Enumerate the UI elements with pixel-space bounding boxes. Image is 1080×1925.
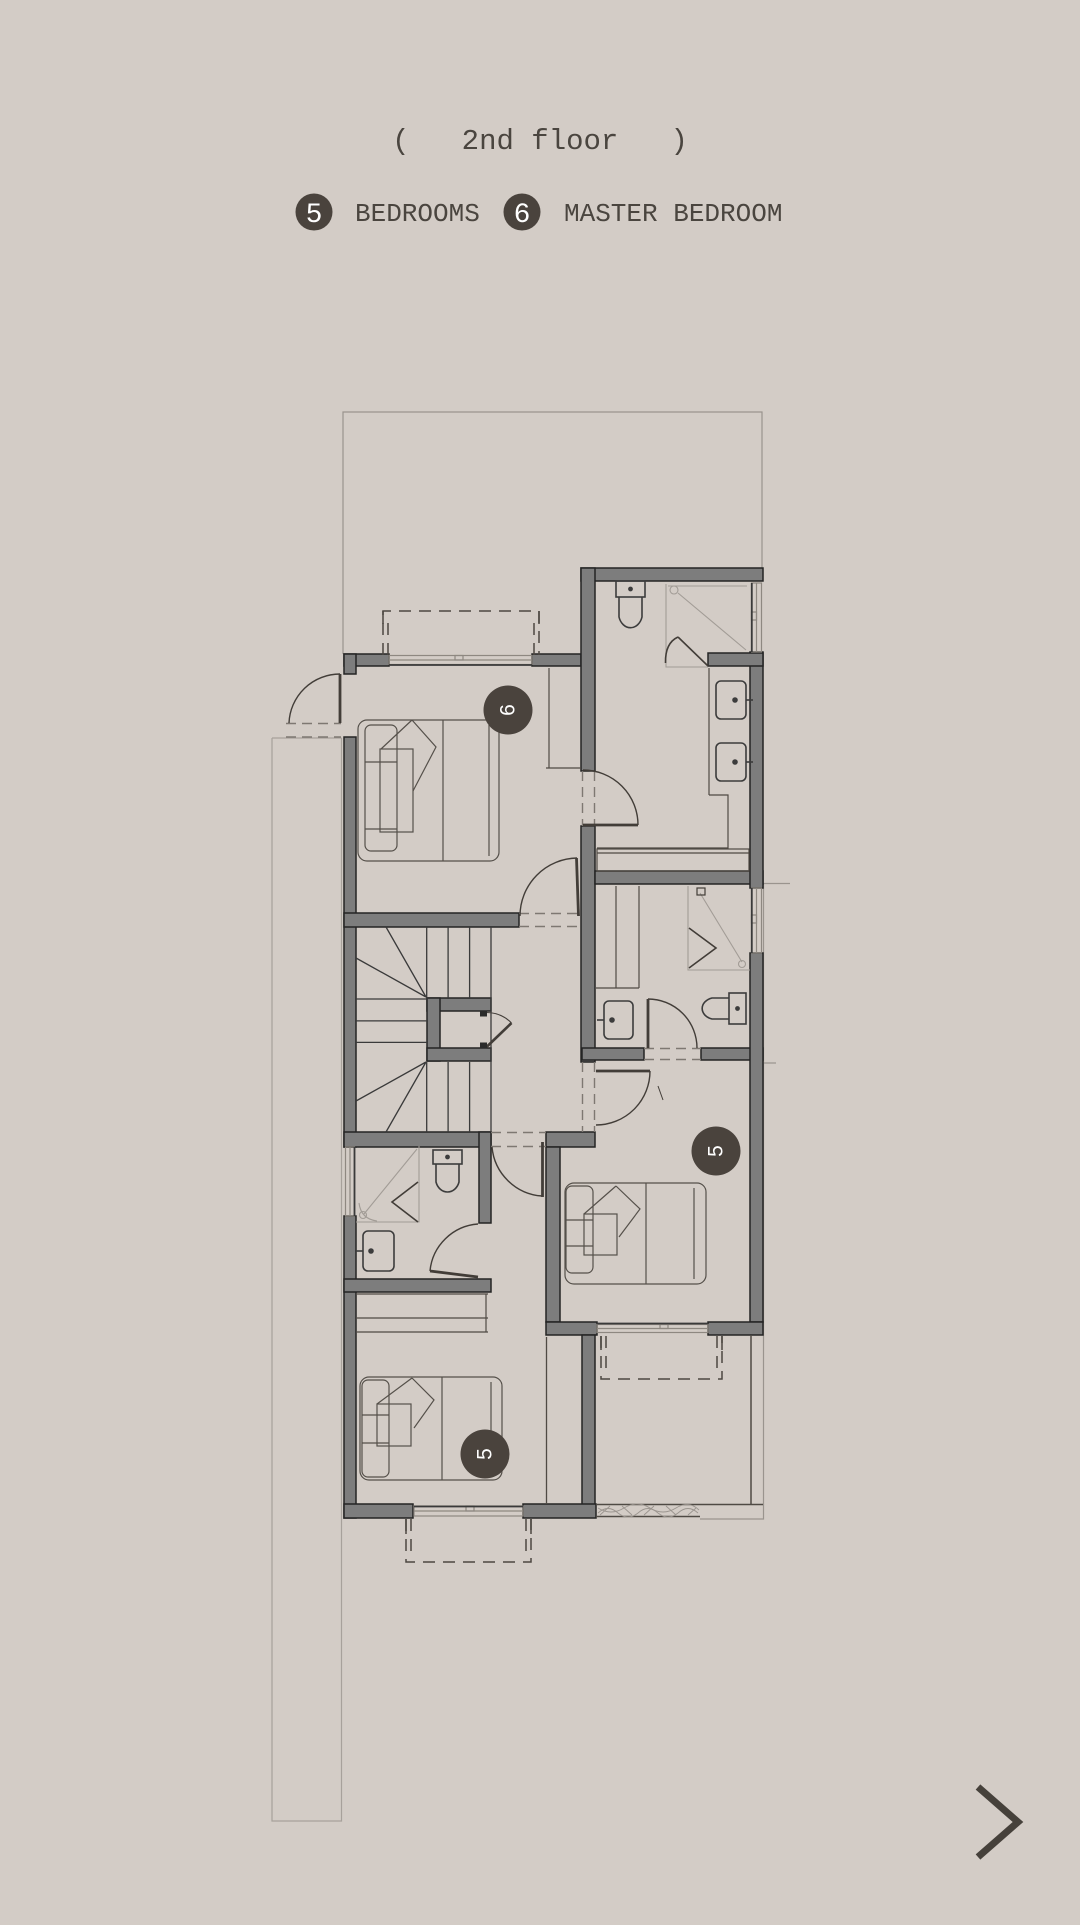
svg-text:5: 5 <box>306 200 323 231</box>
svg-text:MASTER BEDROOM: MASTER BEDROOM <box>564 199 782 229</box>
svg-text:5: 5 <box>705 1145 728 1157</box>
svg-text:( 2nd floor ): ( 2nd floor ) <box>392 125 688 158</box>
svg-text:6: 6 <box>514 200 531 231</box>
svg-text:5: 5 <box>474 1448 497 1460</box>
svg-text:BEDROOMS: BEDROOMS <box>355 199 480 229</box>
svg-text:6: 6 <box>497 704 520 716</box>
